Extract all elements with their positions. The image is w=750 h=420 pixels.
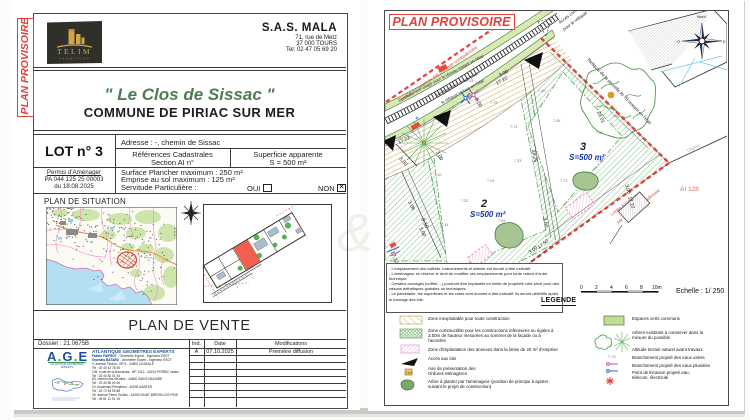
svg-text:4: 4 <box>610 285 613 291</box>
svg-text:OM: OM <box>406 370 412 375</box>
svg-text:7.75: 7.75 <box>490 101 497 105</box>
svg-text:7.74: 7.74 <box>608 354 617 359</box>
svg-text:3: 3 <box>580 141 586 153</box>
svg-text:8: 8 <box>640 285 643 291</box>
svg-text:7.24: 7.24 <box>487 179 494 183</box>
svg-text:7.34: 7.34 <box>441 223 448 227</box>
svg-text:7.74: 7.74 <box>510 125 517 129</box>
svg-text:7.40: 7.40 <box>538 89 545 93</box>
svg-text:TELIM: TELIM <box>57 47 92 56</box>
svg-text:7.10: 7.10 <box>434 173 441 177</box>
svg-text:10m: 10m <box>652 285 662 291</box>
svg-text:7.80: 7.80 <box>596 131 603 135</box>
svg-text:0: 0 <box>580 285 583 291</box>
svg-text:2: 2 <box>595 285 598 291</box>
svg-text:7.32: 7.32 <box>461 199 468 203</box>
svg-text:6: 6 <box>625 285 628 291</box>
svg-text:S=500 m²: S=500 m² <box>470 210 506 219</box>
svg-text:7.45: 7.45 <box>553 119 560 123</box>
svg-text:7.53: 7.53 <box>498 219 505 223</box>
svg-text:7.33: 7.33 <box>514 159 521 163</box>
svg-text:O: O <box>677 39 680 44</box>
svg-text:Nord: Nord <box>697 14 706 19</box>
svg-text:PROMOTION: PROMOTION <box>59 57 90 61</box>
svg-text:S=500 m²: S=500 m² <box>569 153 605 162</box>
svg-text:7.73: 7.73 <box>560 179 567 183</box>
svg-text:2: 2 <box>480 198 487 210</box>
svg-text:E: E <box>723 39 726 44</box>
svg-text:AI 128: AI 128 <box>680 186 699 193</box>
